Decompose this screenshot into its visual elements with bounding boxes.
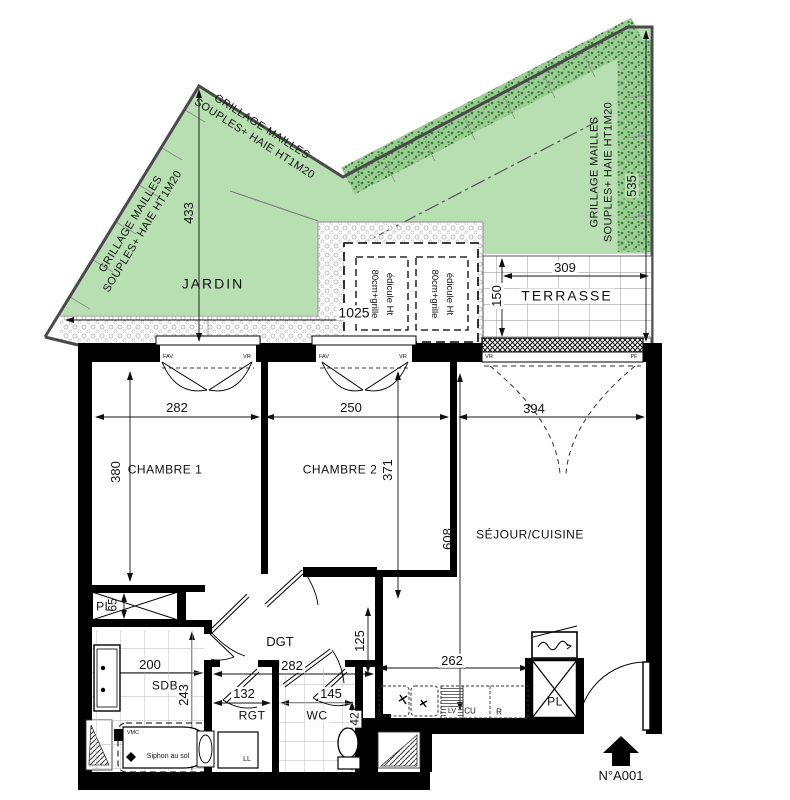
water-heater-icon (538, 641, 568, 650)
floor-plan-page: GRILLAGE MAILLESSOUPLES+ HAIE HT1M20 GRI… (0, 0, 790, 800)
dim-sejour-width: 394 (523, 402, 545, 416)
edicule-label-2: édicule Ht80cm+grille (427, 270, 457, 319)
dim-rgt-width: 132 (231, 687, 257, 701)
kitchen-sink-2 (411, 686, 438, 716)
floor-plan-drawing (0, 0, 790, 800)
dim-chambre1-width: 282 (166, 401, 188, 415)
bay-door-label: PF (630, 354, 637, 360)
terrace-bay (482, 338, 643, 474)
washing-machine (218, 732, 258, 768)
dim-dgt-depth: 125 (353, 628, 367, 654)
vent-label: VMC (127, 730, 139, 736)
washing-machine-label: LL (243, 756, 251, 764)
toilet-tank (338, 757, 360, 769)
dim-sdb-width: 200 (137, 658, 163, 672)
entrance-door-leaf (643, 662, 650, 730)
entrance-door-swing (578, 662, 646, 730)
wc-label: WC (305, 709, 330, 722)
fridge-label: R (496, 709, 502, 718)
hand-basin (199, 735, 212, 763)
window1-casement-label: FAV (163, 354, 173, 360)
faucet-icon (399, 695, 427, 707)
bay-shutter-label: VR (485, 354, 493, 360)
rgt-label: RGT (237, 709, 268, 722)
dim-chambre1-depth: 380 (109, 461, 123, 483)
dim-kitchen-width: 262 (439, 654, 465, 668)
dim-terrace-width: 309 (552, 261, 578, 275)
floor-drain-label: Siphon au sol (147, 753, 189, 761)
window2-casement-label: FAV (319, 354, 329, 360)
vent-icon (114, 729, 123, 741)
dim-terrace-depth: 150 (490, 283, 504, 309)
dim-sejour-depth: 608 (441, 528, 455, 550)
dim-dgt-width: 282 (279, 659, 305, 673)
entrance-arrow-icon (603, 736, 639, 766)
unit-number-label: N°A001 (599, 769, 644, 783)
window-chambre2 (312, 336, 416, 391)
window-chambre1 (156, 336, 260, 391)
dim-pl1-depth: 65 (106, 598, 119, 611)
dim-sdb-depth: 243 (177, 682, 191, 708)
dim-chambre2-depth: 371 (381, 459, 395, 481)
sejour-label: SÉJOUR/CUISINE (476, 528, 584, 541)
dim-wc-width: 145 (318, 687, 344, 701)
edicule-label-1: édicule Ht80cm+grille (367, 270, 397, 319)
hob-label: CU (464, 708, 476, 717)
fence-note-right: GRILLAGE MAILLESSOUPLES+ HAIE HT1M20 (588, 102, 617, 242)
dim-wc-clear: 42 (348, 710, 361, 727)
dim-garden-right: 535 (625, 174, 639, 198)
window2-shutter-label: VR (399, 354, 407, 360)
chambre2-label: CHAMBRE 2 (303, 463, 378, 476)
chambre1-label: CHAMBRE 1 (128, 463, 203, 476)
dishwasher-label: LV (446, 708, 458, 716)
edicule-boxes (344, 243, 478, 342)
dim-garden-left: 433 (182, 202, 196, 224)
toilet-bowl (338, 728, 358, 758)
dim-chambre2-width: 250 (340, 401, 362, 415)
dgt-label: DGT (266, 635, 293, 649)
garden-label: JARDIN (182, 276, 245, 291)
terrace-label: TERRASSE (519, 288, 614, 303)
pl2-label: PL (547, 695, 563, 708)
window1-shutter-label: VR (243, 354, 251, 360)
